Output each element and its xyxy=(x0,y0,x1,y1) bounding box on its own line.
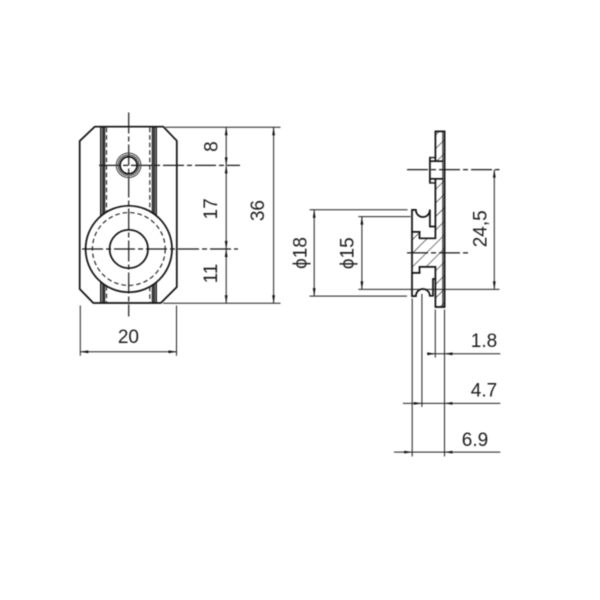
svg-text:8: 8 xyxy=(202,141,223,152)
svg-text:1.8: 1.8 xyxy=(471,331,497,352)
svg-text:24,5: 24,5 xyxy=(470,210,491,247)
svg-text:ϕ18: ϕ18 xyxy=(290,237,311,269)
svg-text:ϕ15: ϕ15 xyxy=(337,237,358,269)
svg-text:20: 20 xyxy=(118,327,139,348)
svg-text:17: 17 xyxy=(201,198,222,219)
svg-text:11: 11 xyxy=(201,264,222,284)
svg-text:4.7: 4.7 xyxy=(471,380,497,401)
svg-text:6.9: 6.9 xyxy=(462,430,488,451)
svg-text:36: 36 xyxy=(248,200,269,221)
